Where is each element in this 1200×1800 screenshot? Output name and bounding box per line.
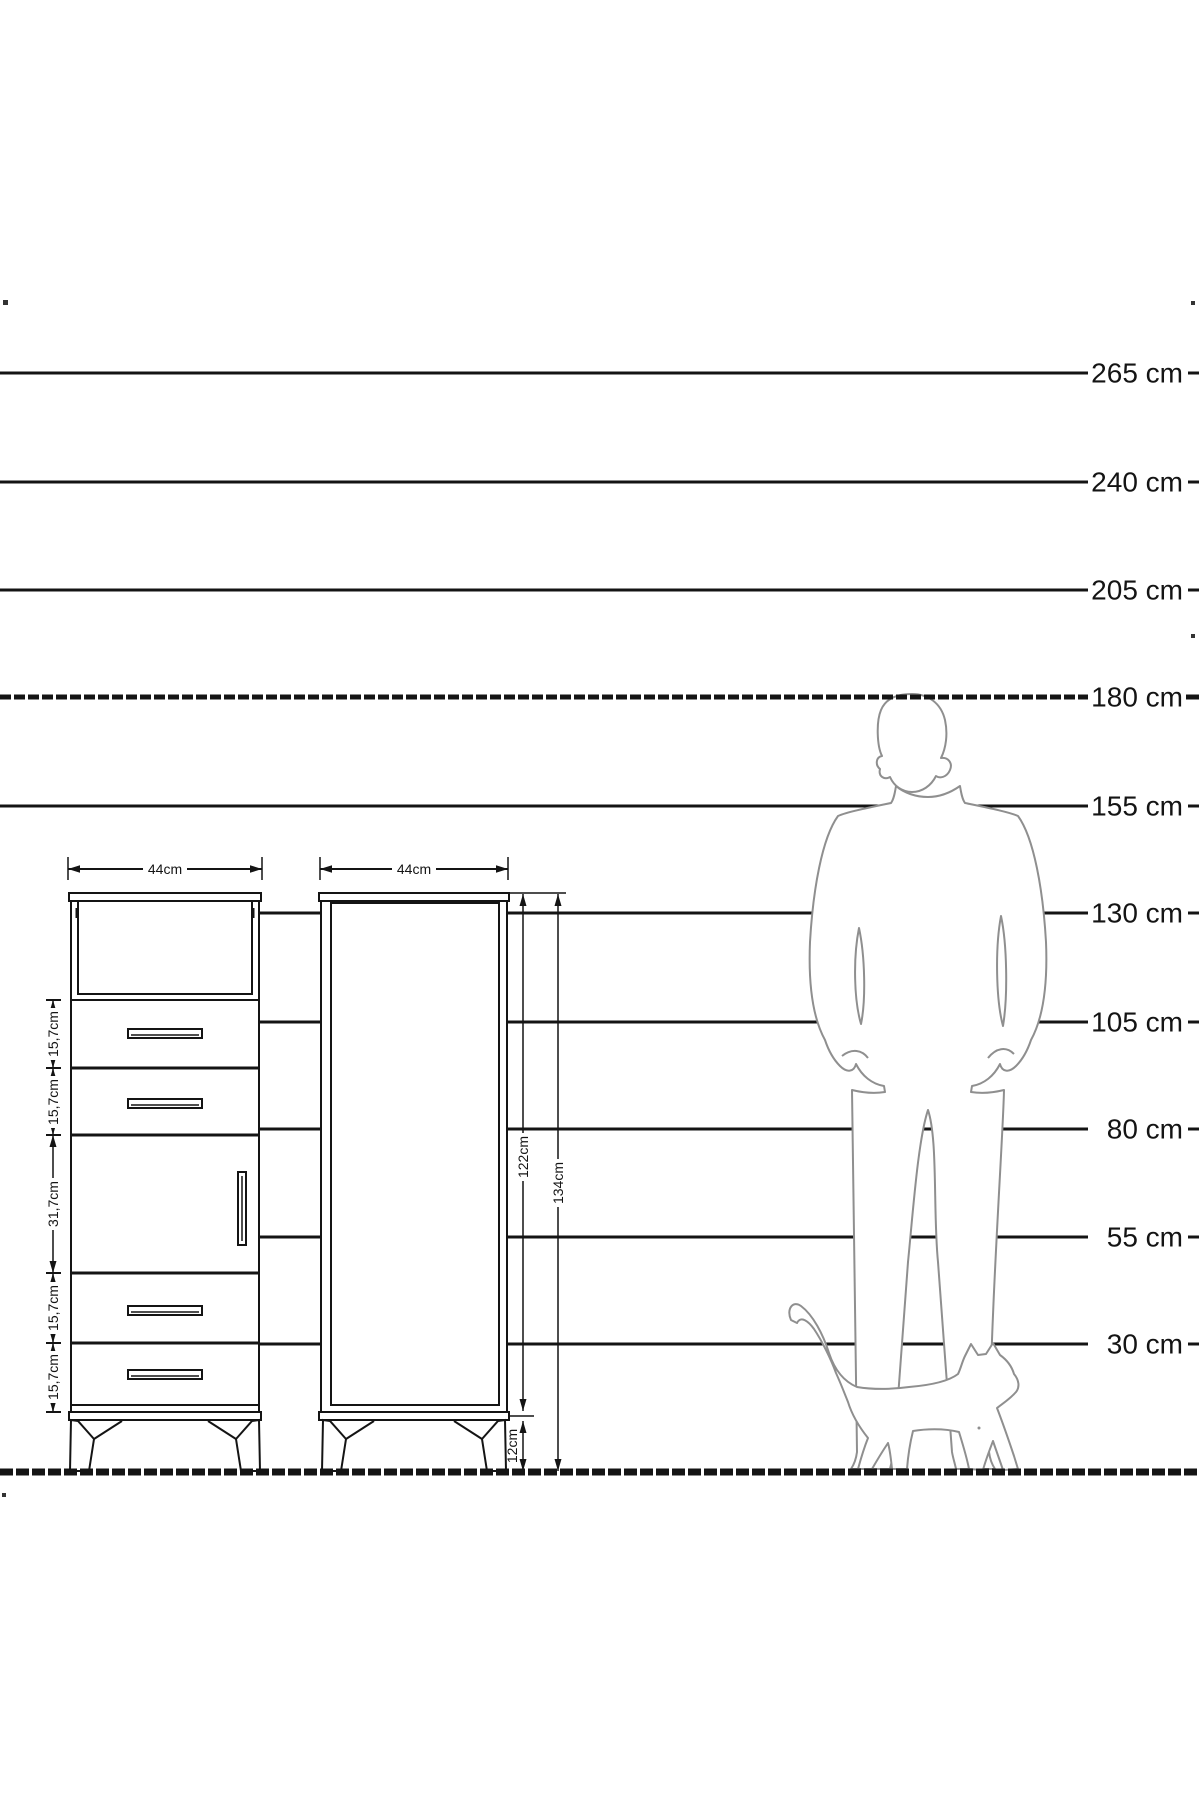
right-cabinet-width-label: 44cm — [397, 861, 431, 877]
scale-label-180: 180 cm — [1091, 682, 1183, 713]
section-label-2: 15,7cm — [45, 1079, 61, 1125]
left-cabinet-open-shelf — [78, 901, 252, 994]
left-cabinet-width-dimension: 44cm — [68, 857, 262, 880]
right-cabinet-width-dimension: 44cm — [320, 857, 508, 880]
scale-label-130: 130 cm — [1091, 898, 1183, 929]
right-cabinet-bottom-board — [319, 1412, 509, 1420]
left-cabinet-legs — [70, 1420, 260, 1471]
scale-label-205: 205 cm — [1091, 575, 1183, 606]
right-cabinet: 44cm — [319, 857, 509, 1471]
section-label-5: 15,7cm — [45, 1354, 61, 1400]
scale-label-30: 30 cm — [1107, 1329, 1183, 1360]
body-height-label: 122cm — [515, 1136, 531, 1178]
scale-label-265: 265 cm — [1091, 358, 1183, 389]
man-head — [877, 694, 951, 792]
left-cabinet-width-label: 44cm — [148, 861, 182, 877]
left-cabinet: 44cm — [68, 857, 262, 1471]
scale-label-155: 155 cm — [1091, 791, 1183, 822]
left-cabinet-bottom-board — [69, 1412, 261, 1420]
scale-label-80: 80 cm — [1107, 1114, 1183, 1145]
section-label-1: 15,7cm — [45, 1011, 61, 1057]
leg-height-label: 12cm — [504, 1429, 520, 1463]
right-height-dimensions: 122cm 134cm 12cm — [504, 893, 566, 1471]
right-cabinet-top-board — [319, 893, 509, 901]
furniture-dimension-diagram: 265 cm 240 cm 205 cm 180 cm 155 cm 130 c… — [0, 0, 1200, 1800]
man-silhouette — [810, 694, 1047, 1469]
scale-label-105: 105 cm — [1091, 1007, 1183, 1038]
section-label-4: 15,7cm — [45, 1285, 61, 1331]
total-height-label: 134cm — [550, 1162, 566, 1204]
section-label-3: 31,7cm — [45, 1181, 61, 1227]
scale-label-240: 240 cm — [1091, 467, 1183, 498]
left-cabinet-top-board — [69, 893, 261, 901]
scale-label-55: 55 cm — [1107, 1222, 1183, 1253]
right-cabinet-legs — [322, 1420, 506, 1471]
left-dimension-chain: 15,7cm 15,7cm 31,7cm 15,7cm 15,7cm — [45, 1000, 61, 1412]
door-handle — [238, 1172, 246, 1245]
right-cabinet-door — [331, 903, 499, 1405]
